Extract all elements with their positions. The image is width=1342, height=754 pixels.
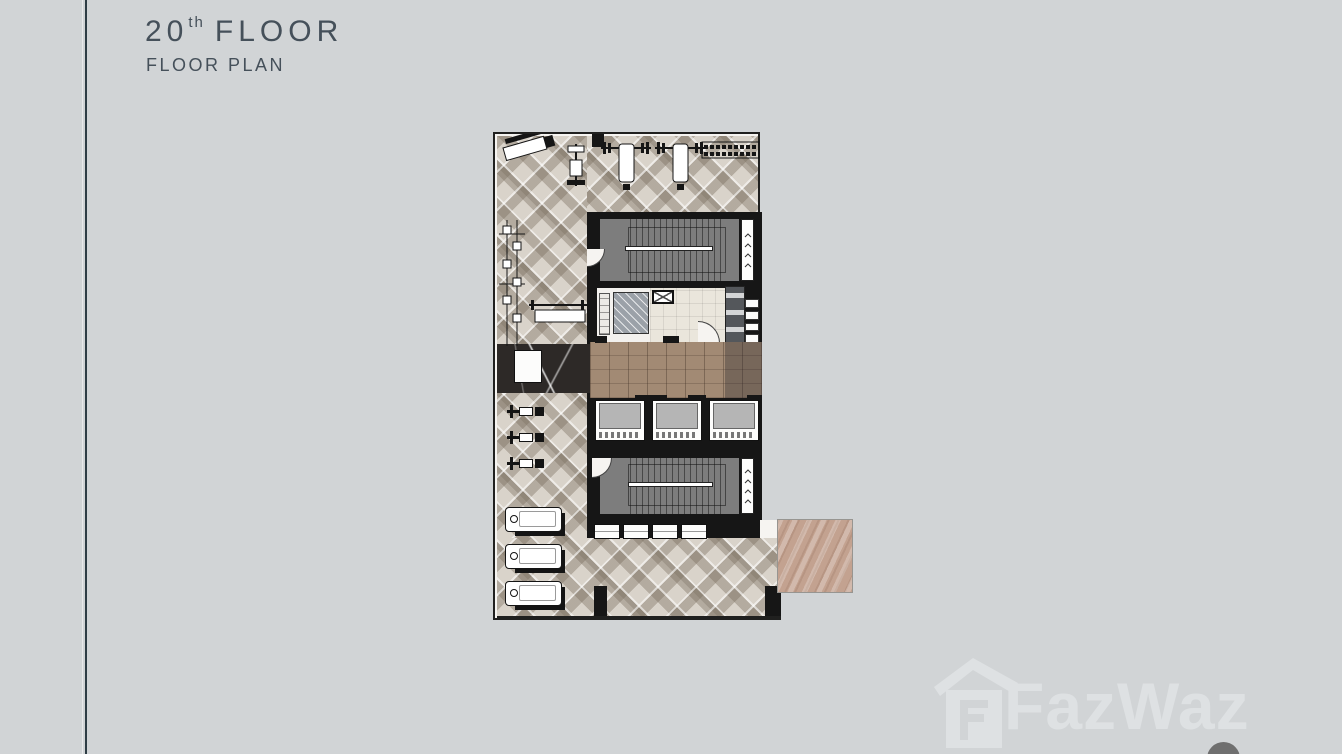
floor-plan — [493, 132, 760, 620]
outdoor-deck — [777, 519, 853, 593]
treadmill-console — [510, 515, 518, 523]
left-rule-line — [85, 0, 87, 754]
treadmill-shadow — [561, 587, 565, 610]
cable-machine-icon — [499, 220, 525, 346]
bike-seat — [535, 459, 544, 468]
deck-threshold — [760, 520, 777, 538]
spin-bike-icon — [507, 429, 547, 446]
treadmill-console — [510, 589, 518, 597]
treadmill-console — [510, 552, 518, 560]
page: { "header": { "floor_number": "20", "ord… — [0, 0, 1342, 754]
treadmill-icon — [505, 507, 562, 532]
treadmill-icon — [505, 581, 562, 606]
spin-bike-icon — [507, 403, 547, 420]
floor-word: FLOOR — [215, 15, 343, 48]
fazwaz-wordmark: FazWaz — [1004, 668, 1250, 744]
bike-seat — [535, 433, 544, 442]
incline-bench-icon — [501, 134, 556, 160]
bench-press-icon — [655, 142, 705, 190]
treadmill-belt — [519, 585, 556, 601]
bike-body — [519, 433, 533, 442]
spin-bike-group — [507, 403, 547, 472]
treadmill-shadow — [561, 513, 565, 536]
bike-body — [519, 459, 533, 468]
spin-bike-icon — [507, 455, 547, 472]
page-title: 20thFLOOR — [145, 14, 343, 49]
flat-bench-icon — [529, 300, 587, 322]
bike-body — [519, 407, 533, 416]
treadmill-belt — [519, 511, 556, 527]
treadmill-shadow — [515, 568, 561, 573]
weight-station-icon — [567, 144, 585, 186]
bench-press-icon — [601, 142, 651, 190]
dumbbell-rack-icon — [702, 142, 759, 158]
floor-number: 20 — [145, 15, 188, 48]
ordinal-suffix: th — [188, 14, 205, 31]
margin-guide-line — [82, 0, 83, 754]
treadmill-icon — [505, 544, 562, 569]
treadmill-shadow — [515, 605, 561, 610]
page-subtitle: FLOOR PLAN — [146, 55, 285, 76]
treadmill-shadow — [515, 531, 561, 536]
bike-seat — [535, 407, 544, 416]
treadmill-belt — [519, 548, 556, 564]
treadmill-shadow — [561, 550, 565, 573]
treadmill-group — [505, 507, 562, 606]
